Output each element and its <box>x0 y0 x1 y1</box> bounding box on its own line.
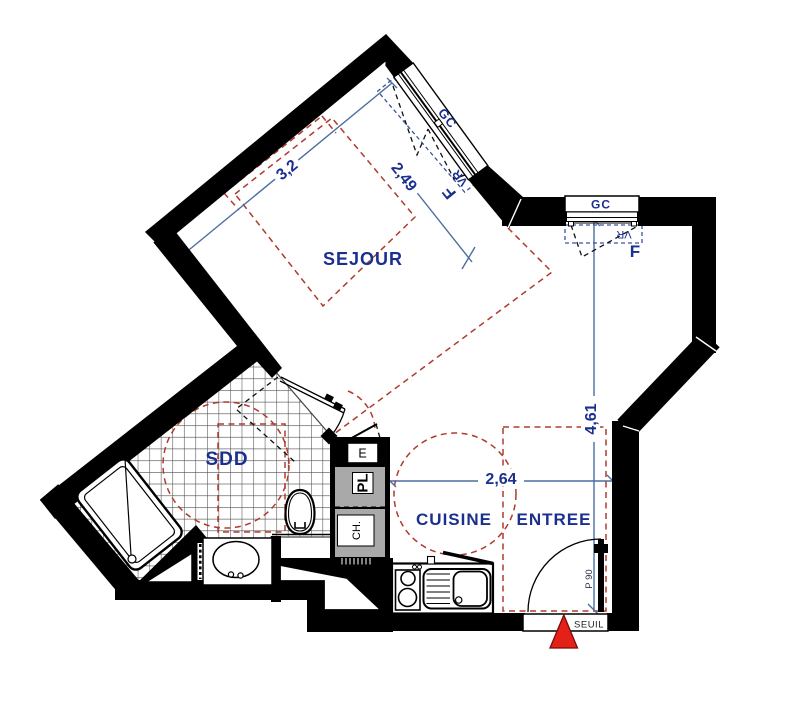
svg-text:PL: PL <box>355 473 372 492</box>
svg-text:GC: GC <box>591 198 611 212</box>
svg-text:2,64: 2,64 <box>485 471 516 488</box>
svg-text:SEUIL: SEUIL <box>574 620 604 631</box>
svg-text:SDD: SDD <box>205 449 248 470</box>
svg-text:P 90: P 90 <box>584 569 595 588</box>
svg-text:E: E <box>358 447 366 461</box>
svg-text:CH.: CH. <box>351 521 363 540</box>
svg-text:4,61: 4,61 <box>583 403 600 434</box>
svg-text:F: F <box>630 242 640 261</box>
svg-text:SEJOUR: SEJOUR <box>323 249 403 269</box>
svg-text:VR: VR <box>616 228 631 240</box>
svg-text:CUISINE: CUISINE <box>416 510 492 529</box>
svg-text:ENTREE: ENTREE <box>517 510 592 529</box>
